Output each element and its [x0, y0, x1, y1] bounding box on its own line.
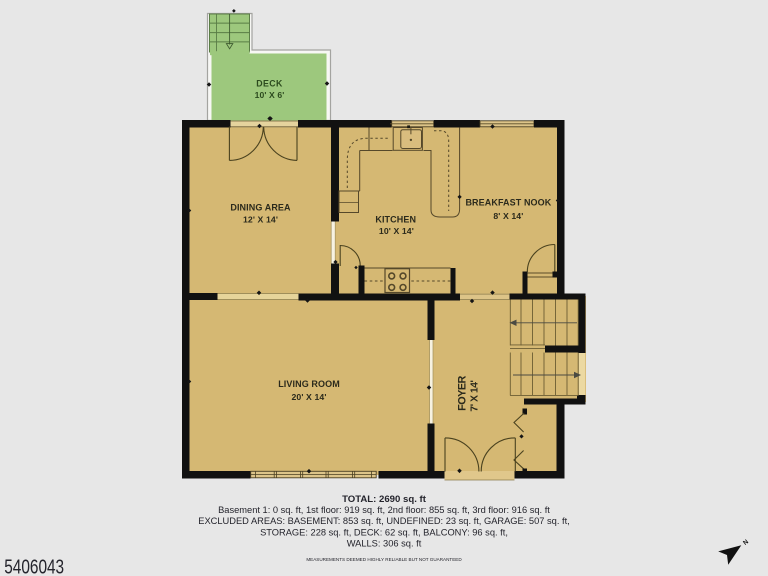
svg-text:Basement 1: 0 sq. ft, 1st floo: Basement 1: 0 sq. ft, 1st floor: 919 sq.…	[218, 505, 550, 515]
svg-text:7' X 14': 7' X 14'	[469, 380, 480, 411]
svg-text:FOYER: FOYER	[456, 375, 468, 410]
svg-text:8' X 14': 8' X 14'	[493, 211, 523, 221]
svg-text:MEASUREMENTS DEEMED HIGHLY REL: MEASUREMENTS DEEMED HIGHLY RELIABLE BUT …	[306, 557, 462, 562]
svg-text:KITCHEN: KITCHEN	[375, 215, 416, 225]
svg-text:EXCLUDED AREAS: BASEMENT: 853: EXCLUDED AREAS: BASEMENT: 853 sq. ft, UN…	[198, 516, 570, 526]
svg-text:10' X 6': 10' X 6'	[255, 90, 285, 100]
svg-text:12' X 14': 12' X 14'	[243, 215, 278, 225]
svg-text:10' X 14': 10' X 14'	[379, 226, 414, 236]
svg-text:DECK: DECK	[256, 79, 283, 89]
svg-text:DINING AREA: DINING AREA	[230, 203, 291, 213]
svg-text:WALLS: 306 sq. ft: WALLS: 306 sq. ft	[347, 539, 422, 549]
svg-text:20' X 14': 20' X 14'	[292, 392, 327, 402]
svg-text:BREAKFAST NOOK: BREAKFAST NOOK	[465, 198, 551, 208]
svg-text:TOTAL: 2690 sq. ft: TOTAL: 2690 sq. ft	[342, 494, 427, 505]
svg-text:STORAGE: 228 sq. ft, DECK: 62: STORAGE: 228 sq. ft, DECK: 62 sq. ft, BA…	[260, 527, 508, 537]
svg-text:LIVING ROOM: LIVING ROOM	[278, 379, 340, 389]
svg-text:5406043: 5406043	[4, 556, 64, 576]
